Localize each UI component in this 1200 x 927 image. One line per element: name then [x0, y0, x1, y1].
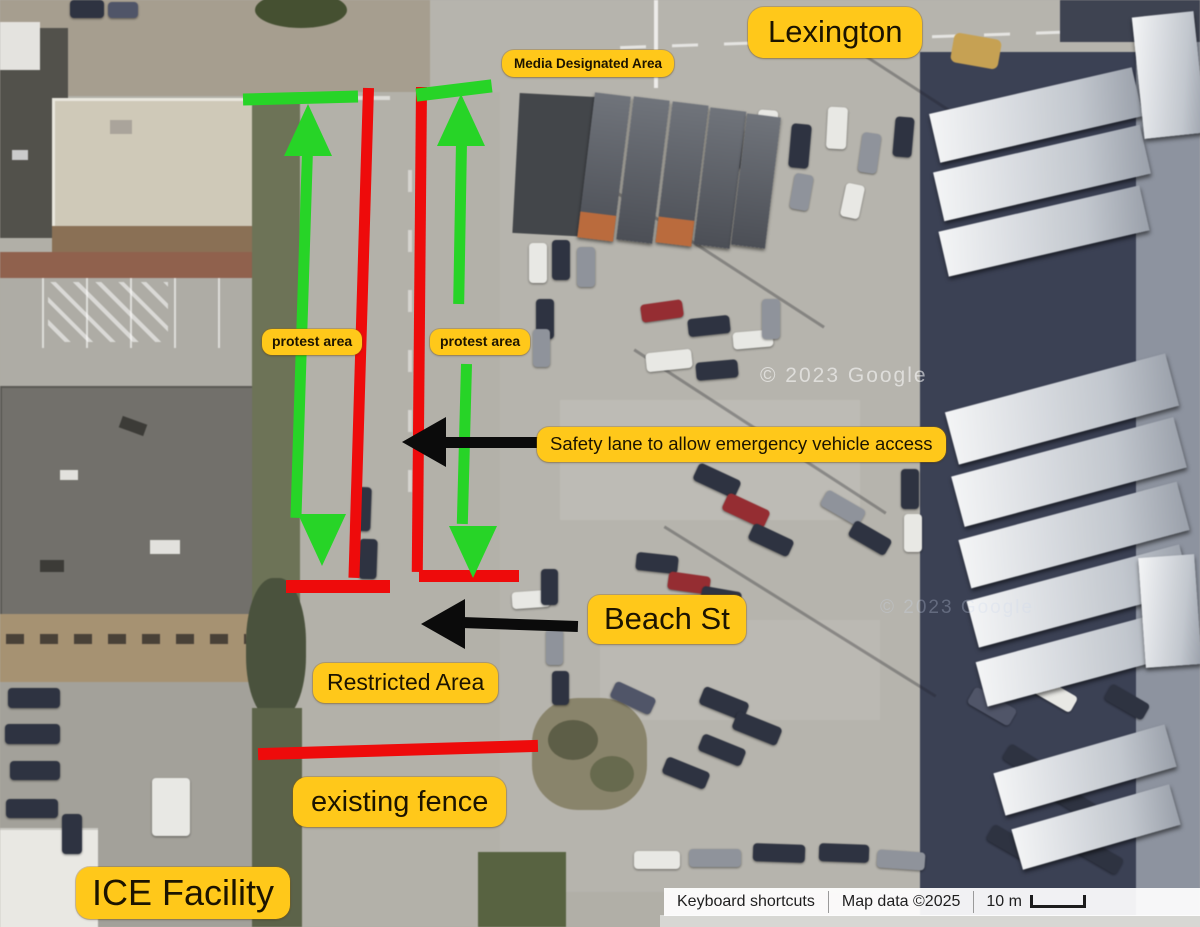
car [747, 523, 794, 558]
label-beach-st: Beach St [588, 595, 746, 644]
label-protest-area-left: protest area [262, 329, 362, 355]
car [731, 711, 783, 747]
car [640, 299, 684, 323]
car [541, 569, 558, 605]
car [645, 349, 693, 373]
car [819, 843, 870, 863]
car [721, 492, 771, 529]
car [529, 243, 547, 283]
map-scale-control[interactable]: 10 m [974, 893, 1086, 911]
car [697, 733, 746, 767]
satellite-photo [0, 0, 1200, 927]
black-arrow-shaft-safety-lane [443, 437, 543, 448]
car [533, 329, 550, 367]
red-barrier-left-cap [286, 580, 390, 593]
roof-panel [1138, 554, 1200, 668]
car [10, 761, 60, 780]
green-arrowhead-up-right [437, 94, 485, 146]
car [847, 520, 892, 557]
car [577, 247, 595, 287]
car [753, 843, 806, 863]
car [840, 182, 866, 219]
car [358, 539, 377, 580]
car [609, 681, 656, 716]
label-safety-lane: Safety lane to allow emergency vehicle a… [537, 427, 946, 462]
car [8, 688, 60, 708]
map-data-copyright: Map data ©2025 [829, 893, 974, 911]
car [789, 173, 814, 212]
car [826, 107, 848, 150]
label-lexington: Lexington [748, 7, 922, 58]
car [695, 359, 738, 381]
car [876, 849, 925, 870]
car [901, 469, 919, 509]
label-ice-facility: ICE Facility [76, 867, 290, 919]
car [904, 514, 922, 552]
car [1103, 683, 1150, 721]
car [552, 671, 569, 705]
car [689, 849, 741, 867]
map-scale-text: 10 m [986, 893, 1022, 911]
car [788, 123, 812, 169]
truck-cab [655, 216, 694, 246]
roof-panel [1132, 11, 1200, 139]
car [152, 778, 190, 836]
car [661, 756, 710, 790]
page-edge-strip [660, 915, 1200, 927]
map-canvas[interactable]: © 2023 Google © 2023 Google Lexington Me… [0, 0, 1200, 927]
car [62, 814, 82, 854]
car [6, 799, 58, 818]
car [70, 0, 104, 18]
label-existing-fence: existing fence [293, 777, 506, 827]
google-watermark: © 2023 Google [760, 364, 928, 388]
car [892, 116, 914, 158]
keyboard-shortcuts-button[interactable]: Keyboard shortcuts [664, 893, 828, 911]
car [546, 629, 563, 665]
google-watermark: © 2023 Google [880, 597, 1034, 619]
car [108, 2, 138, 18]
car [552, 240, 570, 280]
black-arrowhead-beach-st [421, 599, 465, 649]
car [857, 132, 881, 174]
label-media-designated-area: Media Designated Area [502, 50, 674, 77]
green-arrowhead-down-right [449, 526, 497, 578]
map-scale-bar-icon [1030, 895, 1086, 908]
label-restricted-area: Restricted Area [313, 663, 498, 703]
car [762, 299, 780, 339]
car [687, 315, 731, 337]
scenery-layer [0, 0, 1200, 927]
label-protest-area-right: protest area [430, 329, 530, 355]
truck-cab [577, 211, 616, 241]
black-arrowhead-safety-lane [402, 417, 446, 467]
car [5, 724, 60, 744]
map-attribution-bar: Keyboard shortcuts Map data ©2025 10 m [664, 888, 1200, 916]
green-arrowhead-up-left [284, 104, 332, 156]
car [634, 851, 680, 869]
green-arrowhead-down-left [298, 514, 346, 566]
car [692, 462, 742, 499]
